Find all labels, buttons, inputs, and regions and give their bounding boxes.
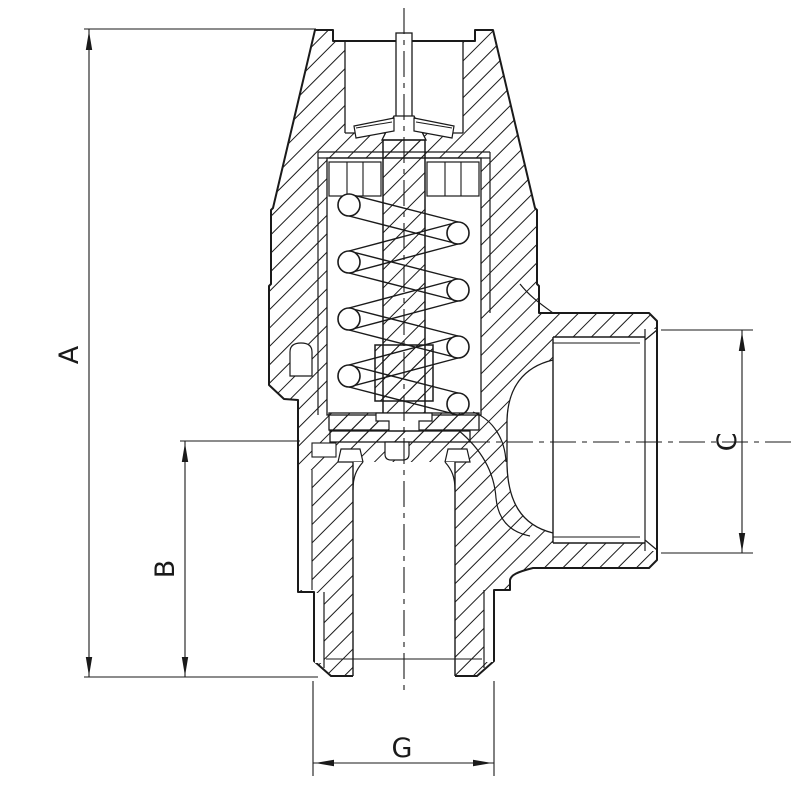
vent-passage: [290, 343, 312, 376]
dim-g-arrow-right: [473, 760, 492, 766]
dimension-label-c: C: [712, 433, 743, 452]
dimension-label-g: G: [392, 733, 413, 764]
hex-flat: [299, 470, 312, 590]
dim-b-arrow-bottom: [182, 657, 188, 676]
technical-drawing-page: A B C G: [0, 0, 800, 800]
dim-b-arrow-top: [182, 443, 188, 462]
dim-a-arrow-top: [86, 31, 92, 50]
valve-section-drawing: A B C G: [0, 0, 800, 800]
dim-c-arrow-bottom: [739, 533, 745, 552]
disc-plug: [385, 442, 409, 460]
dim-g-arrow-left: [315, 760, 334, 766]
outlet-port-bore: [553, 329, 657, 551]
valve-body: [269, 30, 657, 678]
dimension-b: [180, 441, 300, 677]
dim-a-arrow-bottom: [86, 657, 92, 676]
dimension-label-a: A: [54, 345, 85, 364]
dim-c-arrow-top: [739, 332, 745, 351]
dimension-label-b: B: [150, 560, 181, 579]
